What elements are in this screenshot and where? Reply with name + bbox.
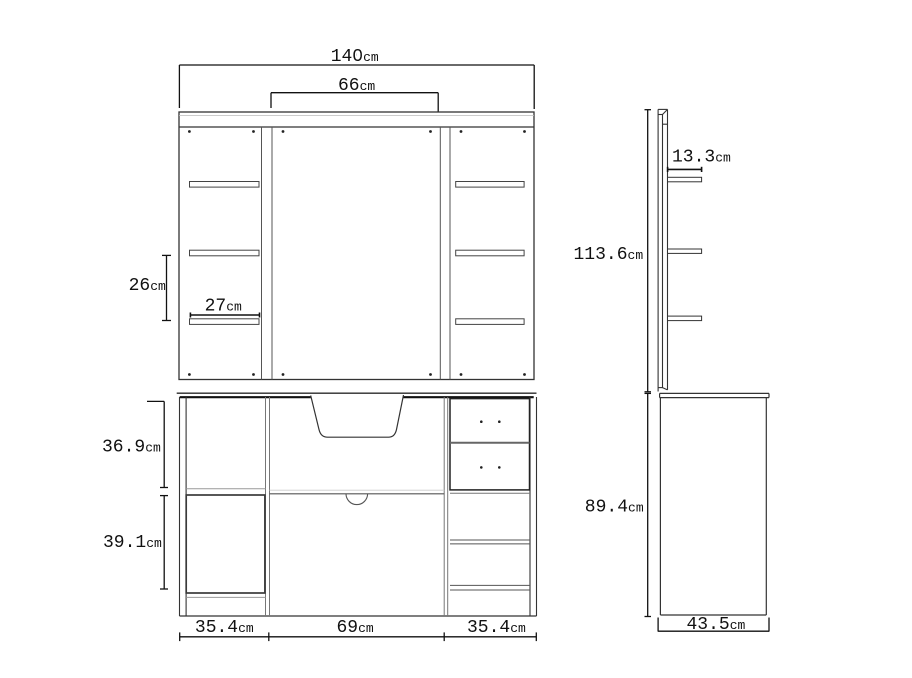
svg-text:113.6cm: 113.6cm bbox=[574, 245, 644, 265]
svg-text:36.9cm: 36.9cm bbox=[102, 438, 161, 458]
svg-text:69cm: 69cm bbox=[337, 618, 374, 638]
svg-text:43.5cm: 43.5cm bbox=[687, 615, 746, 635]
svg-text:26cm: 26cm bbox=[129, 276, 166, 296]
svg-text:89.4cm: 89.4cm bbox=[585, 498, 644, 518]
svg-text:39.1cm: 39.1cm bbox=[103, 533, 162, 553]
svg-text:140cm: 140cm bbox=[331, 47, 379, 67]
svg-text:13.3cm: 13.3cm bbox=[672, 148, 731, 168]
svg-text:35.4cm: 35.4cm bbox=[195, 618, 254, 638]
svg-text:35.4cm: 35.4cm bbox=[467, 618, 526, 638]
svg-text:66cm: 66cm bbox=[338, 76, 375, 96]
svg-text:27cm: 27cm bbox=[205, 297, 242, 317]
